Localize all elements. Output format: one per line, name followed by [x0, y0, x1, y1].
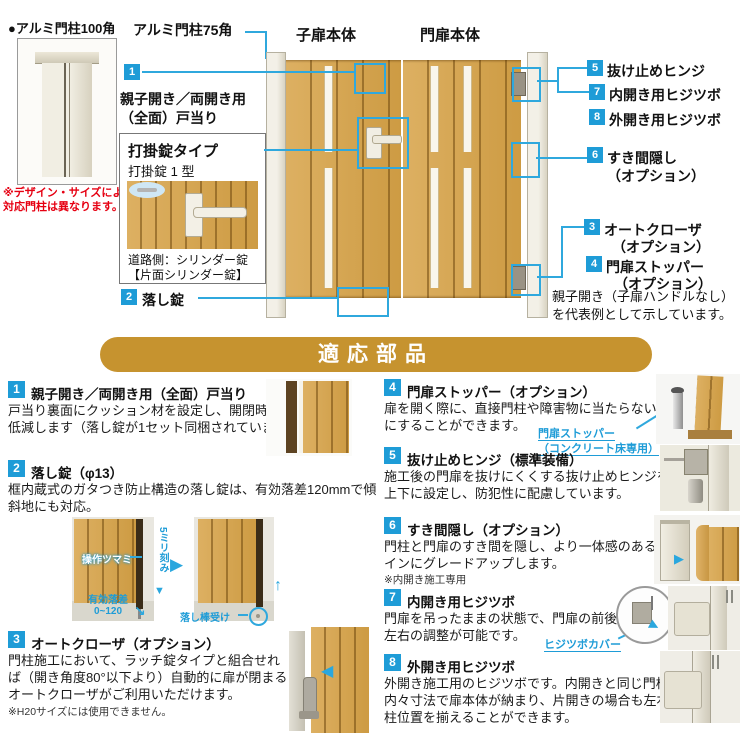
close-arrow-icon: ◀: [321, 661, 333, 681]
catalog-page: ●アルミ門柱100角 ※デザイン・サイズによって 対応門柱は異なります。 アルミ…: [0, 0, 740, 740]
lock-box-title: 打掛錠タイプ: [128, 140, 218, 161]
item-6-body: 門柱と門扉のすき間を隠し、より一体感のあるデザ インにグレードアップします。: [384, 538, 683, 572]
callout-6-badge: 6: [587, 147, 603, 163]
item-2-heading: 落し錠（φ13）: [31, 462, 123, 482]
drop-range-label: 有効落差 0~120: [88, 595, 128, 617]
diagonal-arrow-icon: ↘: [134, 603, 146, 620]
item-5-body: 施工後の門扉を抜けにくくする抜け止めヒンジを 上下に設定し、防犯性に配慮していま…: [384, 468, 670, 502]
outward-hijitsubo-photo: [660, 651, 740, 723]
post75-label: アルミ門柱75角: [133, 20, 232, 40]
item-4-heading: 門扉ストッパー（オプション）: [407, 381, 596, 401]
section-banner: 適応部品: [100, 337, 652, 372]
callout-1-label: 親子開き／両開き用 （全面）戸当り: [120, 90, 246, 128]
item-8-badge: 8: [384, 654, 401, 671]
leader-line: [559, 91, 589, 93]
leader-line: [264, 149, 357, 151]
leader-line: [561, 226, 563, 278]
leader-line: [559, 67, 587, 69]
callout-4-badge: 4: [586, 256, 602, 272]
callout-6-label2: （オプション）: [607, 166, 705, 186]
door-slot: [463, 168, 472, 288]
item-3-heading: オートクローザ（オプション）: [31, 633, 220, 653]
doorstop-photo: [266, 379, 352, 456]
callout-7-badge: 7: [589, 84, 605, 100]
item-1-heading: 親子開き／両開き用（全面）戸当り: [31, 383, 247, 403]
leader-line: [142, 71, 354, 73]
post100-label: ●アルミ門柱100角: [8, 18, 115, 37]
callout-8-label: 外開き用ヒジツボ: [609, 110, 721, 130]
item-1-body: 戸当り裏面にクッション材を設定し、開閉時の音を 低減します（落し錠が1セット同梱…: [8, 402, 307, 436]
post-cap: [35, 52, 99, 63]
callout-2-label: 落し錠: [142, 290, 184, 310]
item-6-heading: すき間隠し（オプション）: [407, 519, 569, 539]
item-7-heading: 内開き用ヒジツボ: [407, 591, 515, 611]
item-3-badge: 3: [8, 631, 25, 648]
item-8-body: 外開き施工用のヒジツボです。内開きと同じ門柱の 内々寸法で扉本体が納まり、片開き…: [384, 675, 682, 726]
next-arrow-icon: ▶: [170, 555, 183, 575]
item-2-body: 框内蔵式のガタつき防止構造の落し錠は、有効落差120mmで傾 斜地にも対応。: [8, 481, 376, 515]
door-slot: [430, 168, 439, 288]
post-body: [42, 63, 92, 177]
item-5-badge: 5: [384, 447, 401, 464]
stopper-photo: [656, 374, 740, 444]
item-1-badge: 1: [8, 381, 25, 398]
callout-6-label: すき間隠し: [607, 148, 677, 168]
inward-hijitsubo-photo: [668, 586, 740, 650]
leader-line: [245, 31, 267, 33]
gap-arrow-icon: ▶: [674, 551, 684, 567]
lock-box-subtitle: 打掛錠 1 型: [128, 161, 194, 180]
callout-5-label: 抜け止めヒンジ: [607, 61, 705, 81]
hinge-photo: [660, 445, 740, 511]
droplock-photo-open: [194, 517, 274, 621]
leader-line: [557, 67, 559, 93]
callout-3-label2: （オプション）: [612, 237, 710, 257]
hijitsubo-inset-circle: ▶: [616, 586, 674, 644]
receiver-label: 落し棒受け: [180, 609, 230, 624]
callout-box-droplock: [337, 287, 389, 317]
callout-1-badge: 1: [124, 64, 140, 80]
item-7-badge: 7: [384, 589, 401, 606]
receiver-circle: [249, 607, 268, 626]
post100-photo: [17, 38, 117, 185]
main-door: [403, 60, 521, 298]
autocloser-photo: ◀: [289, 627, 369, 737]
leader-line: [563, 226, 584, 228]
item-5-heading: 抜け止めヒンジ（標準装備）: [407, 449, 583, 469]
lock-box-caption: 道路側：シリンダー錠 【片面シリンダー錠】: [128, 253, 248, 283]
door-slot: [324, 168, 333, 288]
callout-box-handle: [357, 117, 409, 169]
item-4-badge: 4: [384, 379, 401, 396]
item-6-note: ※内開き施工専用: [384, 572, 466, 587]
callout-2-badge: 2: [121, 289, 137, 305]
representative-note: 親子開き（子扉ハンドルなし） を代表例として示しています。: [552, 288, 734, 324]
key-callout: [129, 182, 165, 198]
gate-post-left: [266, 52, 286, 318]
droplock-figure: 操作ツマミ 5ミリ刻み ▼ 有効落差 0~120 ↘ ▶ 落し棒受け ↑: [60, 513, 370, 627]
hijitsubo-cover-caption: ヒジツボカバー: [544, 638, 621, 653]
down-arrow-icon: ▼: [154, 585, 165, 597]
callout-5-badge: 5: [587, 60, 603, 76]
lock-type-box: 打掛錠タイプ 打掛錠 1 型 道路側：シリンダー錠 【片面シリンダー錠】: [119, 133, 266, 284]
knob-label: 操作ツマミ: [82, 551, 132, 566]
item-2-badge: 2: [8, 460, 25, 477]
door-slot: [430, 66, 439, 152]
child-door-label: 子扉本体: [296, 24, 356, 45]
child-door: [286, 60, 401, 298]
item-6-badge: 6: [384, 517, 401, 534]
callout-8-badge: 8: [589, 109, 605, 125]
callout-box-gap: [511, 142, 540, 178]
leader-line: [537, 276, 563, 278]
leader-line: [536, 157, 587, 159]
item-8-heading: 外開き用ヒジツボ: [407, 656, 515, 676]
gapcover-photo: ▶: [654, 515, 740, 584]
leader-line: [198, 297, 337, 299]
callout-box-hinge-bottom: [511, 264, 541, 296]
callout-box-hinge-top: [512, 67, 541, 102]
leader-line: [537, 80, 559, 82]
callout-7-label: 内開き用ヒジツボ: [609, 85, 721, 105]
door-slot: [463, 66, 472, 152]
callout-3-badge: 3: [584, 219, 600, 235]
item-3-note: ※H20サイズには使用できません。: [8, 704, 172, 719]
callout-box-stop: [354, 63, 386, 94]
lock-lever: [193, 207, 247, 218]
lock-photo: [127, 181, 258, 249]
up-arrow-icon: ↑: [274, 577, 282, 595]
item-3-body: 門柱施工において、ラッチ錠タイプと組合せれ ば（開き角度80°以下より）自動的に…: [8, 652, 287, 703]
pitch-label: 5ミリ刻み: [155, 527, 170, 589]
door-slot: [324, 66, 333, 152]
main-door-label: 門扉本体: [420, 24, 480, 45]
